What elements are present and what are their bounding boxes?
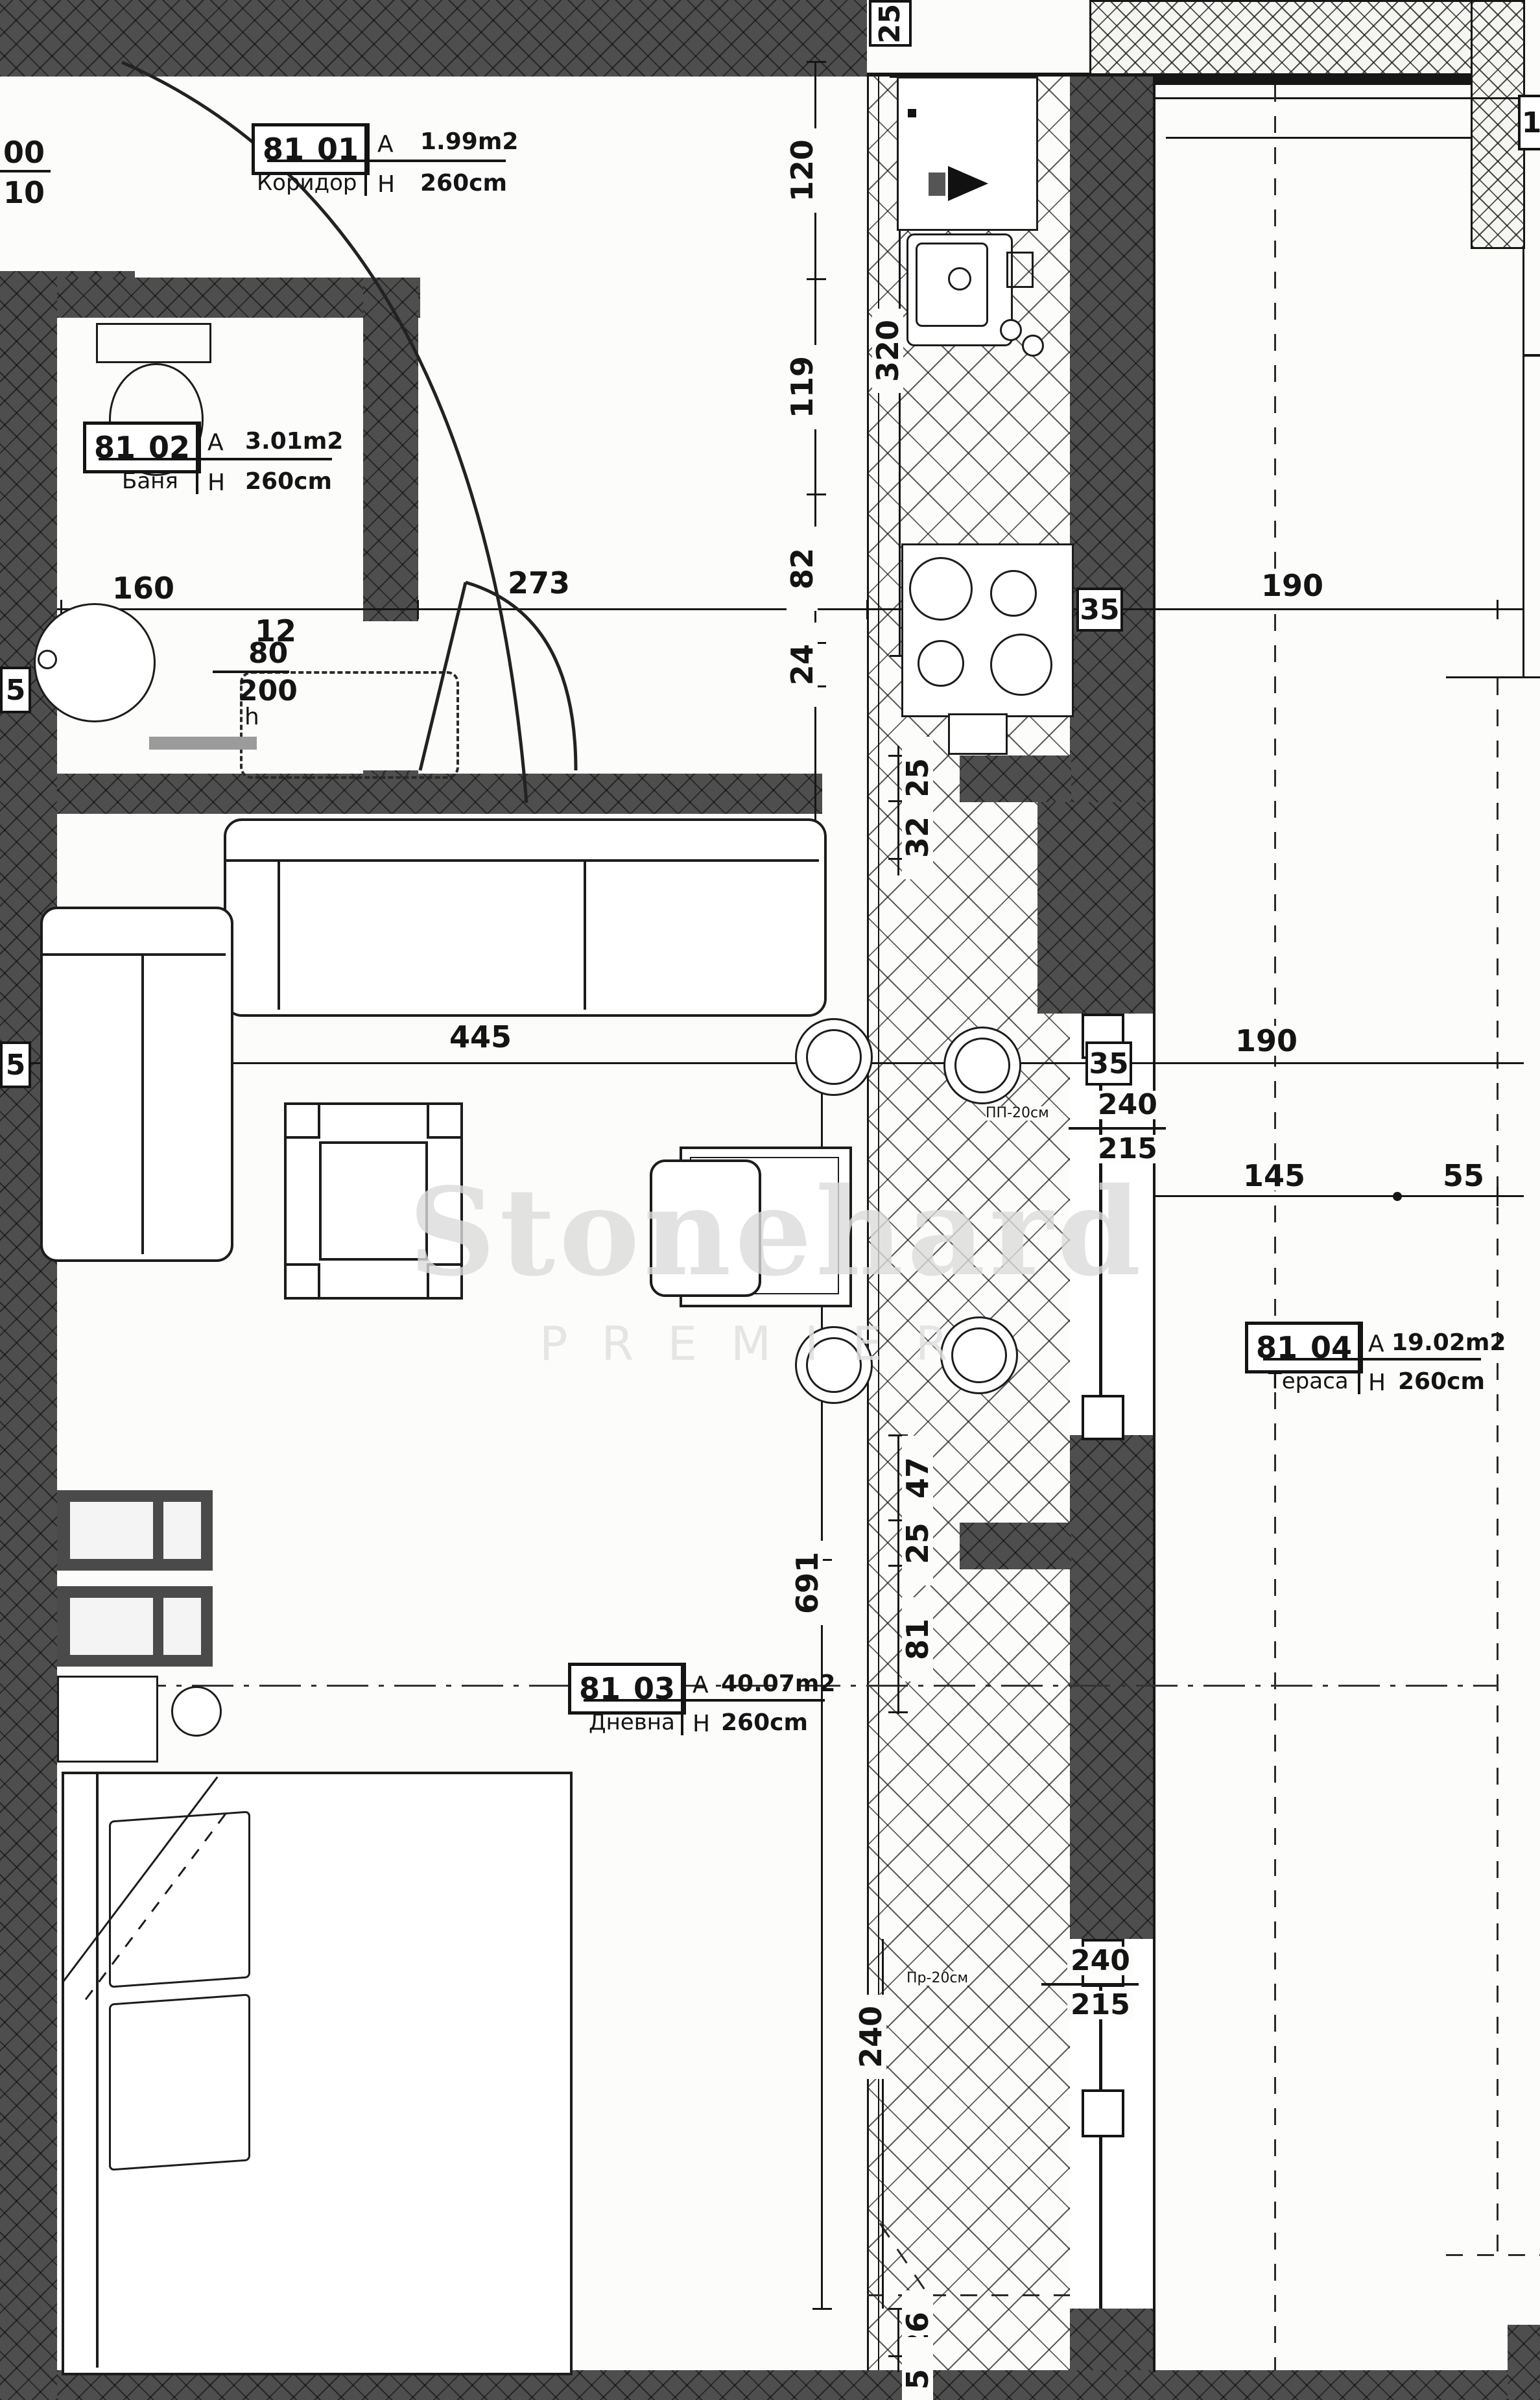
dining-stool-inner [806, 1029, 862, 1085]
wall-unit-2-panel [70, 1598, 153, 1655]
fraction-line [1041, 1983, 1139, 1986]
bed-pillow [109, 1811, 250, 1988]
facade-outer-line [1153, 77, 1155, 2372]
wall-unit-2-panel [163, 1598, 201, 1655]
dim-82: 82 [787, 527, 818, 611]
dim-partial-right-box: 1 [1518, 95, 1540, 150]
room-height: 260cm [1398, 1368, 1485, 1395]
chaise-arm-line [43, 953, 226, 956]
dim-5-box-left-2: 5 [0, 1041, 31, 1088]
tick [1154, 1054, 1155, 1073]
window-side-height: 215 [1095, 1135, 1161, 1163]
dim-25-top-box: 25 [869, 0, 912, 47]
height-prefix: H [377, 171, 395, 198]
tick [866, 600, 868, 619]
wall-column-mid [1037, 802, 1154, 1014]
entry-door-height: 10 [0, 178, 48, 208]
room-code-box-81-02: 8102 [83, 422, 201, 473]
wall-left-exterior [0, 271, 57, 2400]
fraction-line [0, 170, 51, 172]
bath-door-height: 200 [235, 677, 301, 706]
stove-burner [909, 557, 973, 621]
wall-column-top-right [1471, 0, 1525, 249]
dim-273: 273 [504, 568, 573, 598]
height-prefix: H [693, 1711, 710, 1737]
dim-35: 35 [1089, 1047, 1128, 1080]
sofa-back-line [226, 859, 819, 862]
tick [812, 2308, 832, 2310]
height-prefix: H [1368, 1370, 1386, 1396]
wall-column-protrusion-1 [960, 755, 1071, 802]
tick [1154, 600, 1155, 619]
tick [888, 1711, 908, 1713]
dim-190-top: 190 [1258, 571, 1327, 600]
area-prefix: A [377, 131, 394, 158]
wall-unit-1-panel [163, 1502, 201, 1559]
entry-door-width: 00 [0, 137, 48, 167]
washbasin-drain [38, 650, 57, 669]
dim-chain-bottom [897, 2309, 899, 2372]
dim-691: 691 [792, 1541, 823, 1625]
wall-column-protrusion-2 [960, 1523, 1071, 1569]
tick [807, 278, 826, 280]
dim-55: 55 [1439, 1161, 1487, 1191]
stove-burner [990, 570, 1037, 617]
nightstand [57, 1676, 158, 1763]
room-area: 40.07m2 [721, 1670, 835, 1697]
dim-5-bottom: 5 [902, 2337, 933, 2400]
dim-445: 445 [446, 1022, 515, 1052]
window-bottom-width: 240 [1067, 1947, 1133, 1975]
tick [1154, 1187, 1155, 1206]
room-area: 1.99m2 [420, 128, 518, 155]
tick [1497, 1187, 1499, 1206]
area-prefix: A [1368, 1331, 1384, 1357]
kitchen-base-unit [948, 713, 1008, 755]
window-side-width: 240 [1095, 1091, 1161, 1119]
dim-320: 320 [872, 309, 903, 393]
dining-stool-inner [954, 1038, 1010, 1093]
kitchen-cabinet [897, 77, 1038, 231]
sink-knob [1022, 335, 1044, 357]
dim-145: 145 [1240, 1161, 1309, 1191]
terrace-railing-dashed [1497, 678, 1499, 2255]
terrace-neighbor-stub-1 [1522, 354, 1540, 357]
dim-160: 160 [109, 573, 178, 603]
dim-5-box-left-1: 5 [0, 667, 31, 713]
dim-25-top: 25 [874, 3, 907, 43]
area-prefix: A [693, 1672, 709, 1698]
label-underline [267, 160, 506, 162]
label-underline [99, 458, 332, 460]
window-side-note: ПП-20см [986, 1106, 1049, 1121]
terrace-inner-line-3 [1471, 137, 1473, 248]
dim-partial: 1 [1522, 106, 1540, 139]
coffee-table-leg [284, 1102, 320, 1139]
dim-120: 120 [787, 128, 818, 213]
room-code-box-81-01: 8101 [252, 123, 370, 175]
bathroom-door-arc [415, 576, 580, 777]
dim-5: 5 [6, 1049, 26, 1082]
stove-burner [918, 640, 964, 687]
room-area: 19.02m2 [1392, 1329, 1506, 1356]
bath-door-width: 80 [245, 639, 291, 668]
area-prefix: A [207, 429, 224, 456]
coffee-table-leg [427, 1102, 463, 1139]
dim-chain-col-lower [897, 1435, 899, 1714]
sofa-main [224, 818, 827, 1017]
sofa-chaise [40, 907, 233, 1262]
tick [1497, 600, 1499, 619]
dim-24: 24 [787, 623, 818, 707]
terrace-dashed-bottom [1446, 2254, 1540, 2256]
terrace-neighbor-stub-2 [1446, 676, 1540, 678]
floor-plan: 160 12 273 35 190 5 5 445 35 190 145 55 … [0, 0, 1540, 2400]
room-area: 3.01m2 [245, 428, 343, 455]
room-height: 260cm [420, 170, 507, 196]
room-name: Коридор [257, 170, 357, 196]
sofa-cushion-divider [584, 862, 586, 1010]
dim-240-window: 240 [855, 1995, 886, 2079]
chaise-cushion-line [141, 956, 144, 1254]
dim-line-mid [23, 1062, 1524, 1064]
room-code-box-81-04: 8104 [1245, 1322, 1363, 1373]
fraction-line [1069, 1127, 1166, 1130]
dim-35-box-mid: 35 [1085, 1041, 1132, 1086]
table-lamp [171, 1686, 222, 1737]
stove-burner [990, 634, 1052, 696]
sofa-armrest-line [278, 862, 280, 1010]
dim-32: 32 [902, 795, 933, 879]
wall-between-windows [1070, 1435, 1154, 1939]
dim-line-terrace [1154, 1195, 1524, 1197]
terrace-inner-line-2 [1166, 137, 1472, 139]
dim-81: 81 [902, 1597, 933, 1681]
wall-bottom-right-strip [1070, 2309, 1154, 2372]
room-height: 260cm [245, 468, 332, 495]
window-bottom-note: Пр-20см [906, 1971, 968, 1986]
room-name: Баня [122, 468, 178, 494]
kitchen-cabinet-dot [908, 109, 916, 117]
extractor-base [929, 172, 945, 196]
tick [807, 61, 826, 63]
sink-drain [948, 267, 971, 291]
dim-35-box-top: 35 [1076, 588, 1123, 632]
dim-35: 35 [1080, 593, 1119, 626]
dim-119: 119 [787, 345, 818, 429]
wall-top-terrace [1089, 0, 1475, 77]
room-name: Тераса [1268, 1368, 1349, 1394]
room-height: 260cm [721, 1709, 808, 1736]
sink-knob [1000, 319, 1022, 341]
terrace-right-line [1522, 248, 1524, 678]
window-side-handle-bottom [1082, 1395, 1124, 1440]
bath-door-handle: h [241, 706, 263, 729]
window-bottom-height: 215 [1067, 1991, 1133, 2019]
label-underline [1263, 1358, 1481, 1360]
watermark-brand: Stonehard [409, 1161, 1145, 1303]
bed-headboard-line [96, 1774, 99, 2368]
tick [807, 493, 826, 495]
terrace-inner-line-1 [1154, 97, 1522, 99]
room-name: Дневна [589, 1709, 675, 1735]
dim-25-lower: 25 [902, 1501, 933, 1586]
window-bottom-handle-mid [1082, 2089, 1124, 2137]
dim-chain-col-upper [897, 746, 899, 875]
kitchen-bottom-dashed [867, 2294, 1070, 2296]
fraction-line [213, 671, 289, 673]
height-prefix: H [207, 469, 225, 496]
dim-dot [1393, 1192, 1402, 1201]
terrace-axis-dashed [1274, 85, 1276, 2370]
bed-pillow [109, 1993, 250, 2170]
wall-corner-bottom-right [1508, 2325, 1540, 2400]
dim-190-mid: 190 [1232, 1026, 1301, 1056]
room-code-box-81-03: 8103 [568, 1663, 686, 1715]
wall-unit-1-panel [70, 1502, 153, 1559]
coffee-table-leg [284, 1263, 320, 1300]
sink-tap [1006, 252, 1034, 288]
dim-5: 5 [6, 674, 26, 707]
label-underline [584, 1699, 825, 1702]
watermark-premier: PREMIER [539, 1316, 982, 1371]
